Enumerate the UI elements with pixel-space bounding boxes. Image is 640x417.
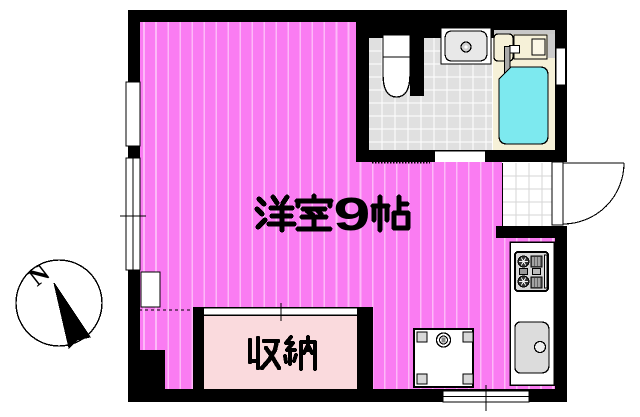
- svg-text:9: 9: [333, 189, 370, 240]
